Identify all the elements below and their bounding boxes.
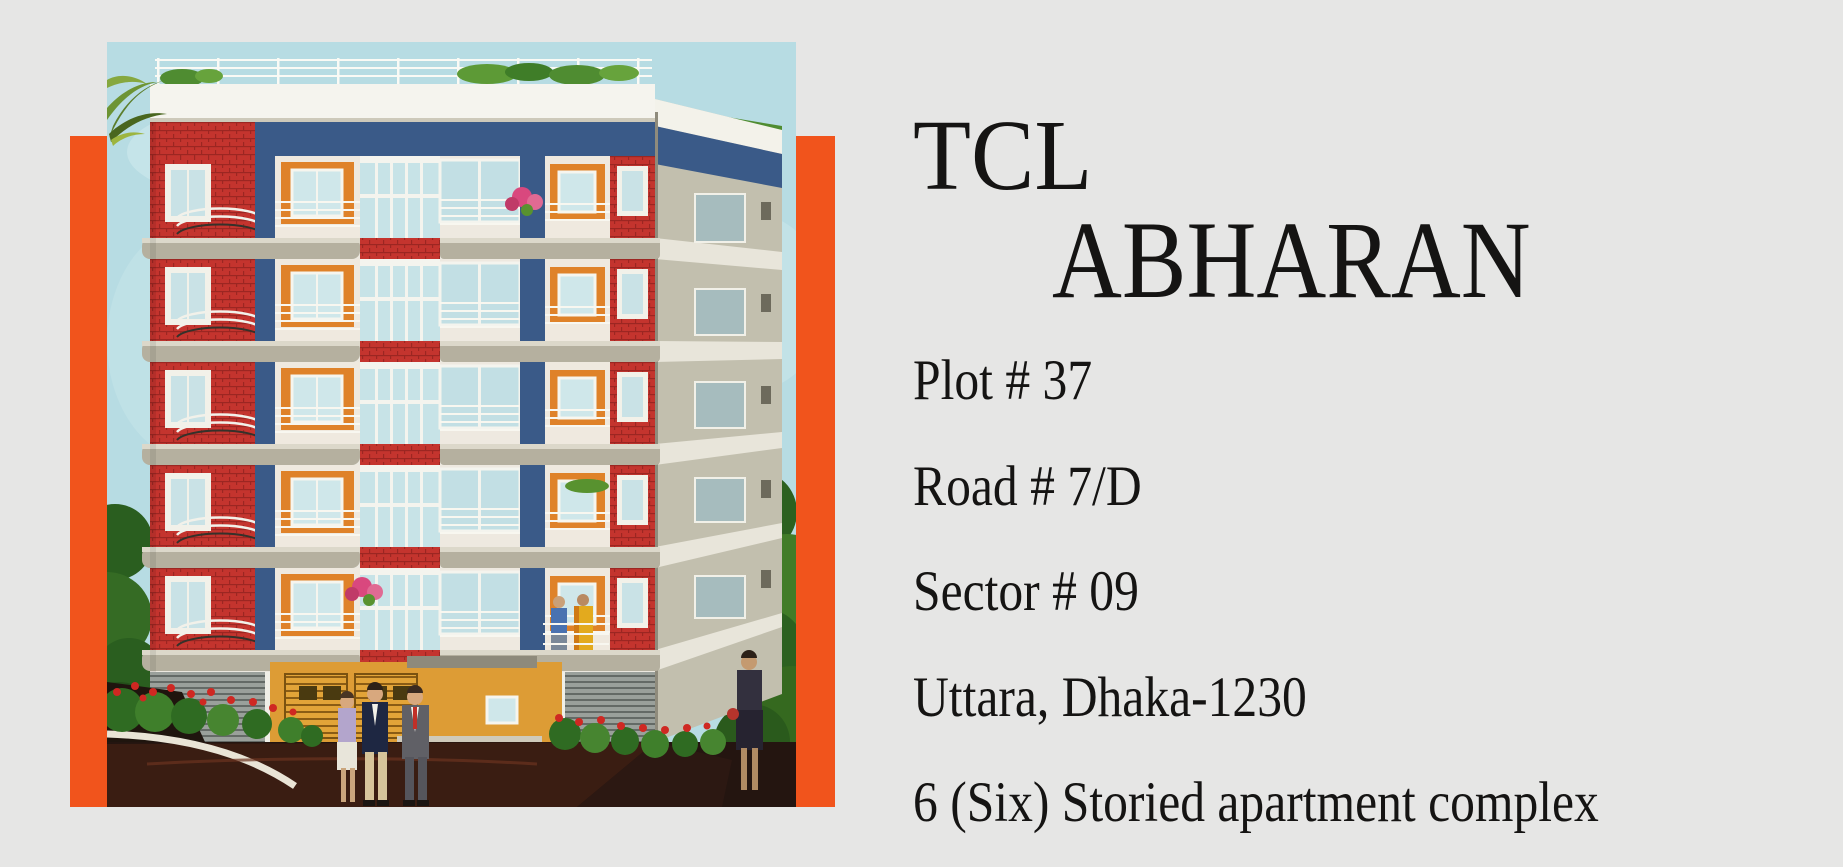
building-illustration: Architectural rendering of a six-storied… xyxy=(107,42,796,807)
building-side-facade xyxy=(650,99,782,742)
building-description: 6 (Six) Storied apartment complex xyxy=(913,774,1599,831)
title-line-1: TCL xyxy=(913,105,1092,206)
address-city: Uttara, Dhaka-1230 xyxy=(913,669,1307,726)
address-sector: Sector # 09 xyxy=(913,563,1139,620)
building-photo: Architectural rendering of a six-storied… xyxy=(107,42,796,807)
address-road: Road # 7/D xyxy=(913,458,1142,515)
flyer-page: Architectural rendering of a six-storied… xyxy=(0,0,1843,867)
title-line-2: ABHARAN xyxy=(1052,205,1531,315)
address-plot: Plot # 37 xyxy=(913,352,1092,409)
